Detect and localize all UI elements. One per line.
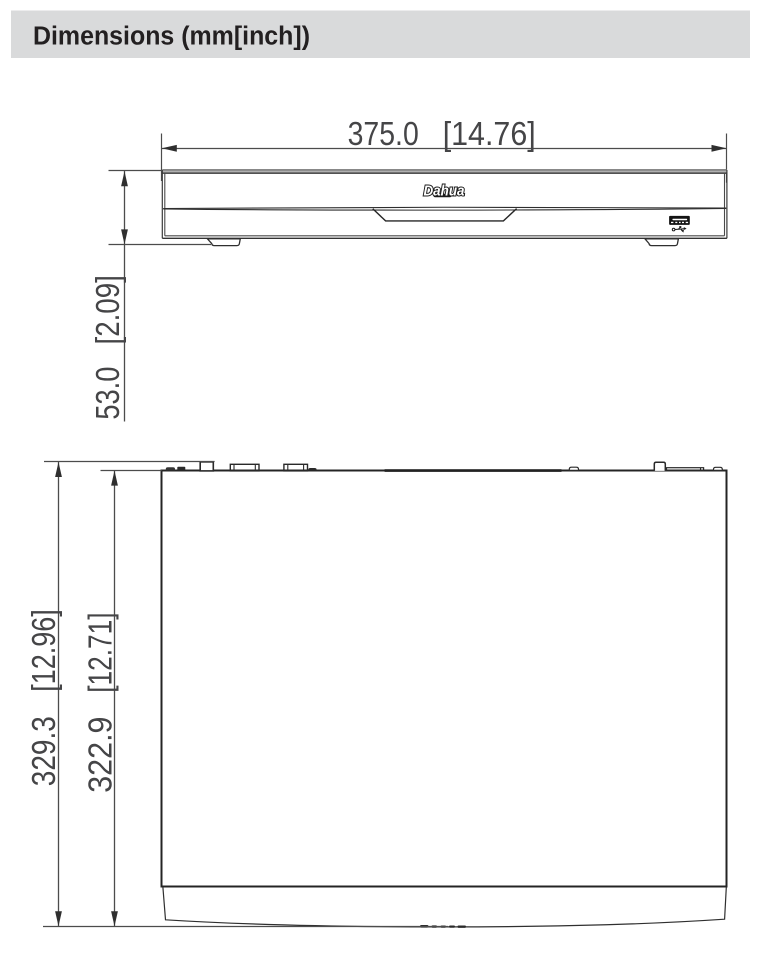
svg-text:[12.71]: [12.71] [82,612,119,692]
svg-text:[14.76]: [14.76] [443,115,536,152]
svg-text:Dahua: Dahua [424,183,465,199]
svg-text:53.0: 53.0 [89,367,126,420]
svg-text:322.9: 322.9 [82,717,119,793]
svg-text:Dimensions (mm[inch]): Dimensions (mm[inch]) [33,23,310,51]
svg-text:[2.09]: [2.09] [89,275,126,344]
svg-text:329.3: 329.3 [25,716,62,786]
svg-text:[12.96]: [12.96] [25,609,62,692]
svg-text:375.0: 375.0 [348,115,419,152]
